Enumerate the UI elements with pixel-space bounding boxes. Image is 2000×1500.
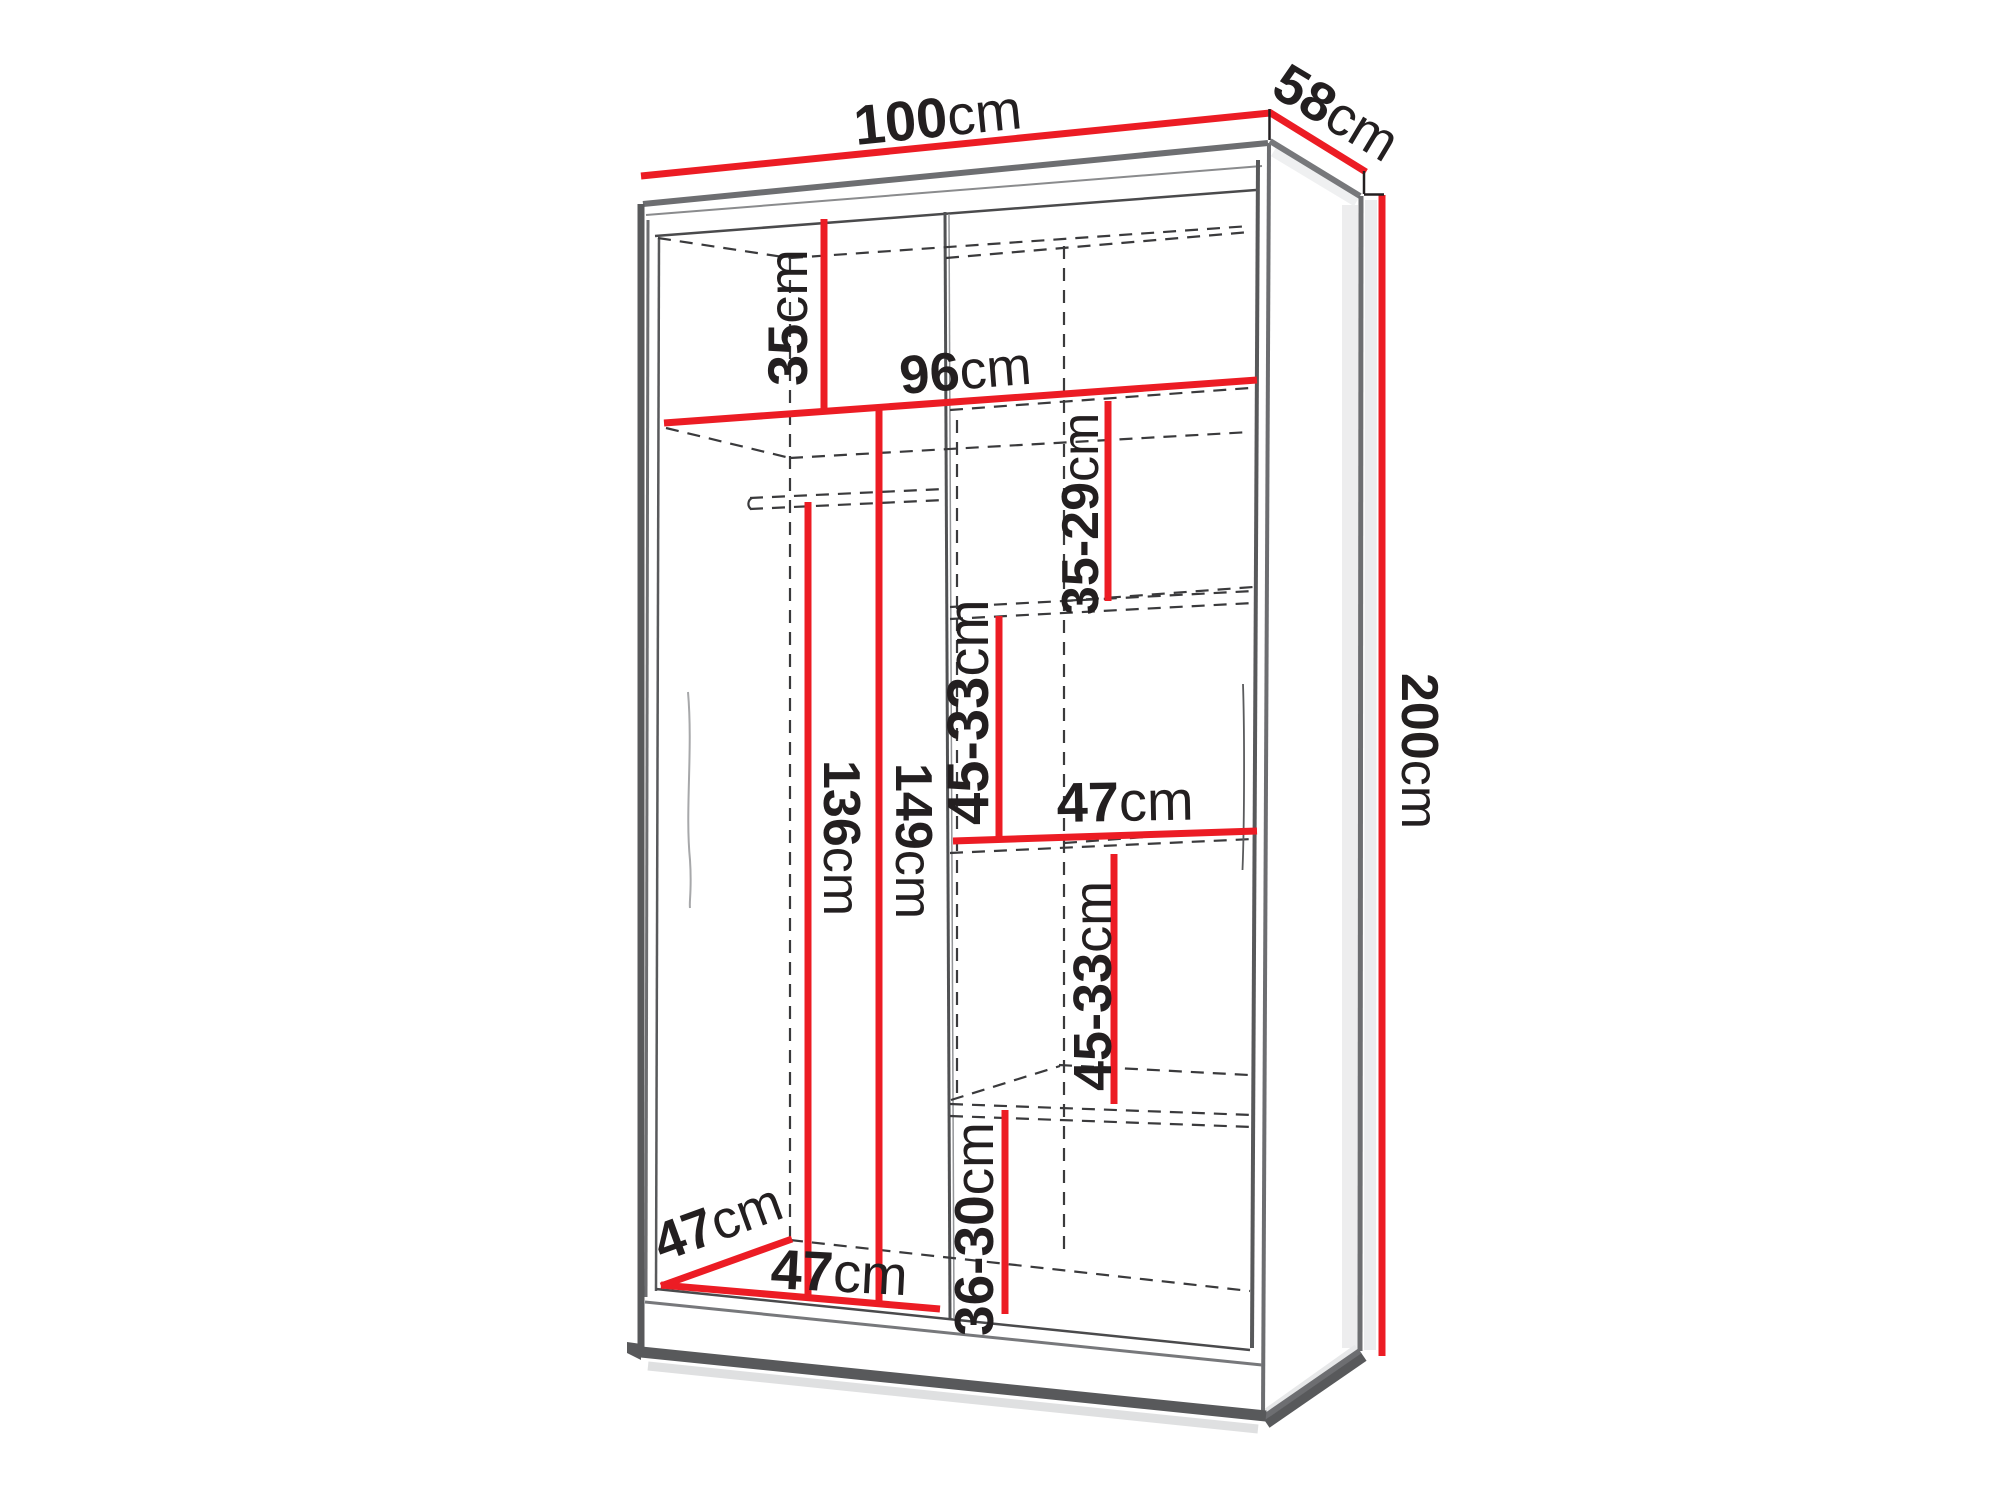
svg-text:35-29cm: 35-29cm	[1052, 413, 1110, 615]
svg-text:47cm: 47cm	[646, 1172, 791, 1274]
svg-text:36-30cm: 36-30cm	[943, 1122, 1005, 1336]
svg-text:35cm: 35cm	[756, 249, 819, 386]
svg-text:149cm: 149cm	[884, 763, 942, 919]
svg-text:100cm: 100cm	[851, 77, 1025, 157]
svg-text:45-33cm: 45-33cm	[1063, 881, 1123, 1091]
svg-text:96cm: 96cm	[897, 336, 1033, 406]
svg-text:45-33cm: 45-33cm	[936, 599, 1001, 825]
svg-text:47cm: 47cm	[769, 1237, 909, 1307]
svg-text:136cm: 136cm	[812, 760, 870, 916]
svg-text:200cm: 200cm	[1390, 673, 1448, 829]
svg-text:47cm: 47cm	[1056, 769, 1194, 834]
